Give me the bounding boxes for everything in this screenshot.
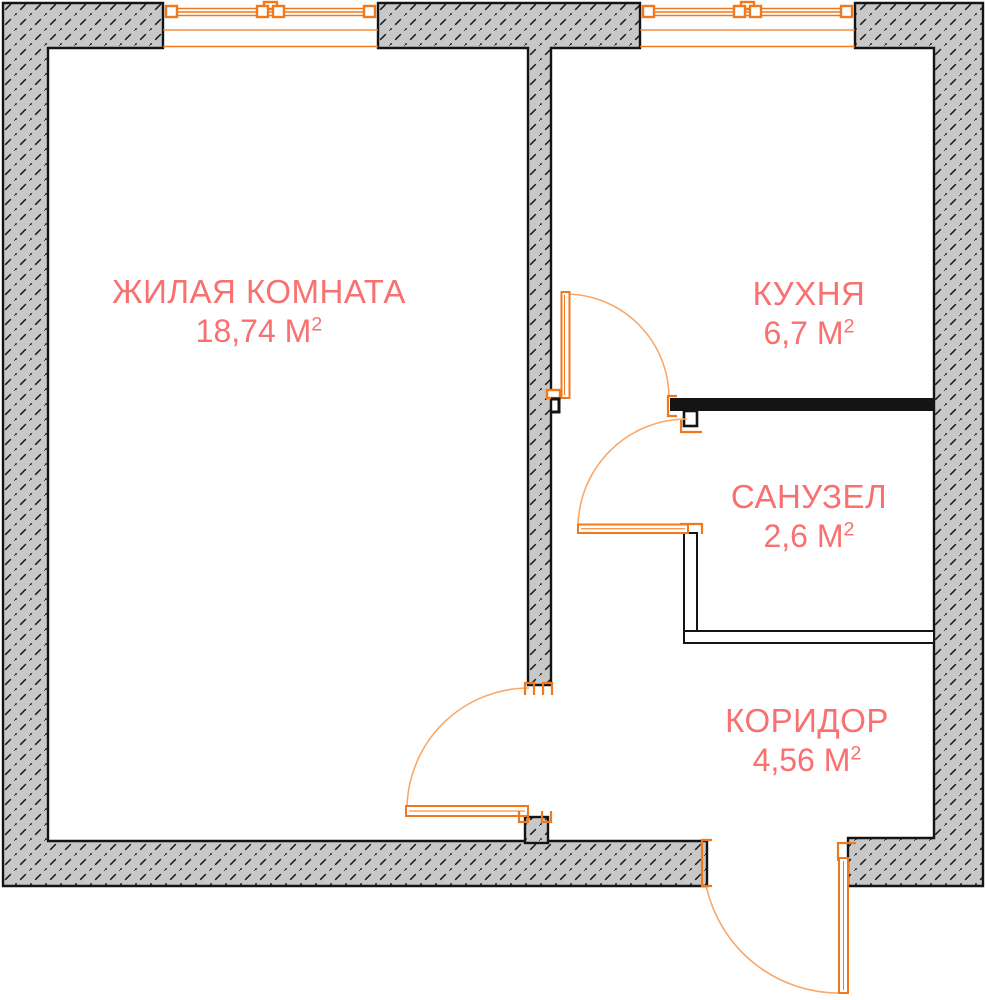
- door-living-room-icon: [406, 683, 552, 822]
- wall-left-and-bottom: [3, 3, 707, 886]
- floor-plan: ЖИЛАЯ КОМНАТА 18,74 М2 КУХНЯ 6,7 М2 САНУ…: [0, 0, 986, 1000]
- room-label-living-room: ЖИЛАЯ КОМНАТА 18,74 М2: [112, 274, 406, 349]
- window-kitchen-icon: [640, 2, 855, 47]
- room-area: 6,7 М2: [753, 316, 866, 351]
- door-kitchen-icon: [547, 292, 677, 416]
- window-living-room-icon: [163, 2, 378, 47]
- room-name: КОРИДОР: [725, 703, 889, 739]
- door-entrance-icon: [702, 840, 856, 993]
- room-name: ЖИЛАЯ КОМНАТА: [112, 274, 406, 310]
- room-name: КУХНЯ: [753, 276, 866, 312]
- door-bathroom-icon: [578, 419, 702, 534]
- room-label-bathroom: САНУЗЕЛ 2,6 М2: [731, 479, 887, 554]
- room-label-corridor: КОРИДОР 4,56 М2: [725, 703, 889, 778]
- wall-kitchen-bathroom: [670, 398, 934, 411]
- wall-bathroom-left: [684, 533, 697, 643]
- wall-top-pier-and-center-partition: [378, 3, 640, 685]
- room-area: 4,56 М2: [725, 743, 889, 778]
- room-name: САНУЗЕЛ: [731, 479, 887, 515]
- wall-bathroom-bottom: [684, 631, 934, 643]
- room-area: 18,74 М2: [112, 314, 406, 349]
- room-area: 2,6 М2: [731, 519, 887, 554]
- room-label-kitchen: КУХНЯ 6,7 М2: [753, 276, 866, 351]
